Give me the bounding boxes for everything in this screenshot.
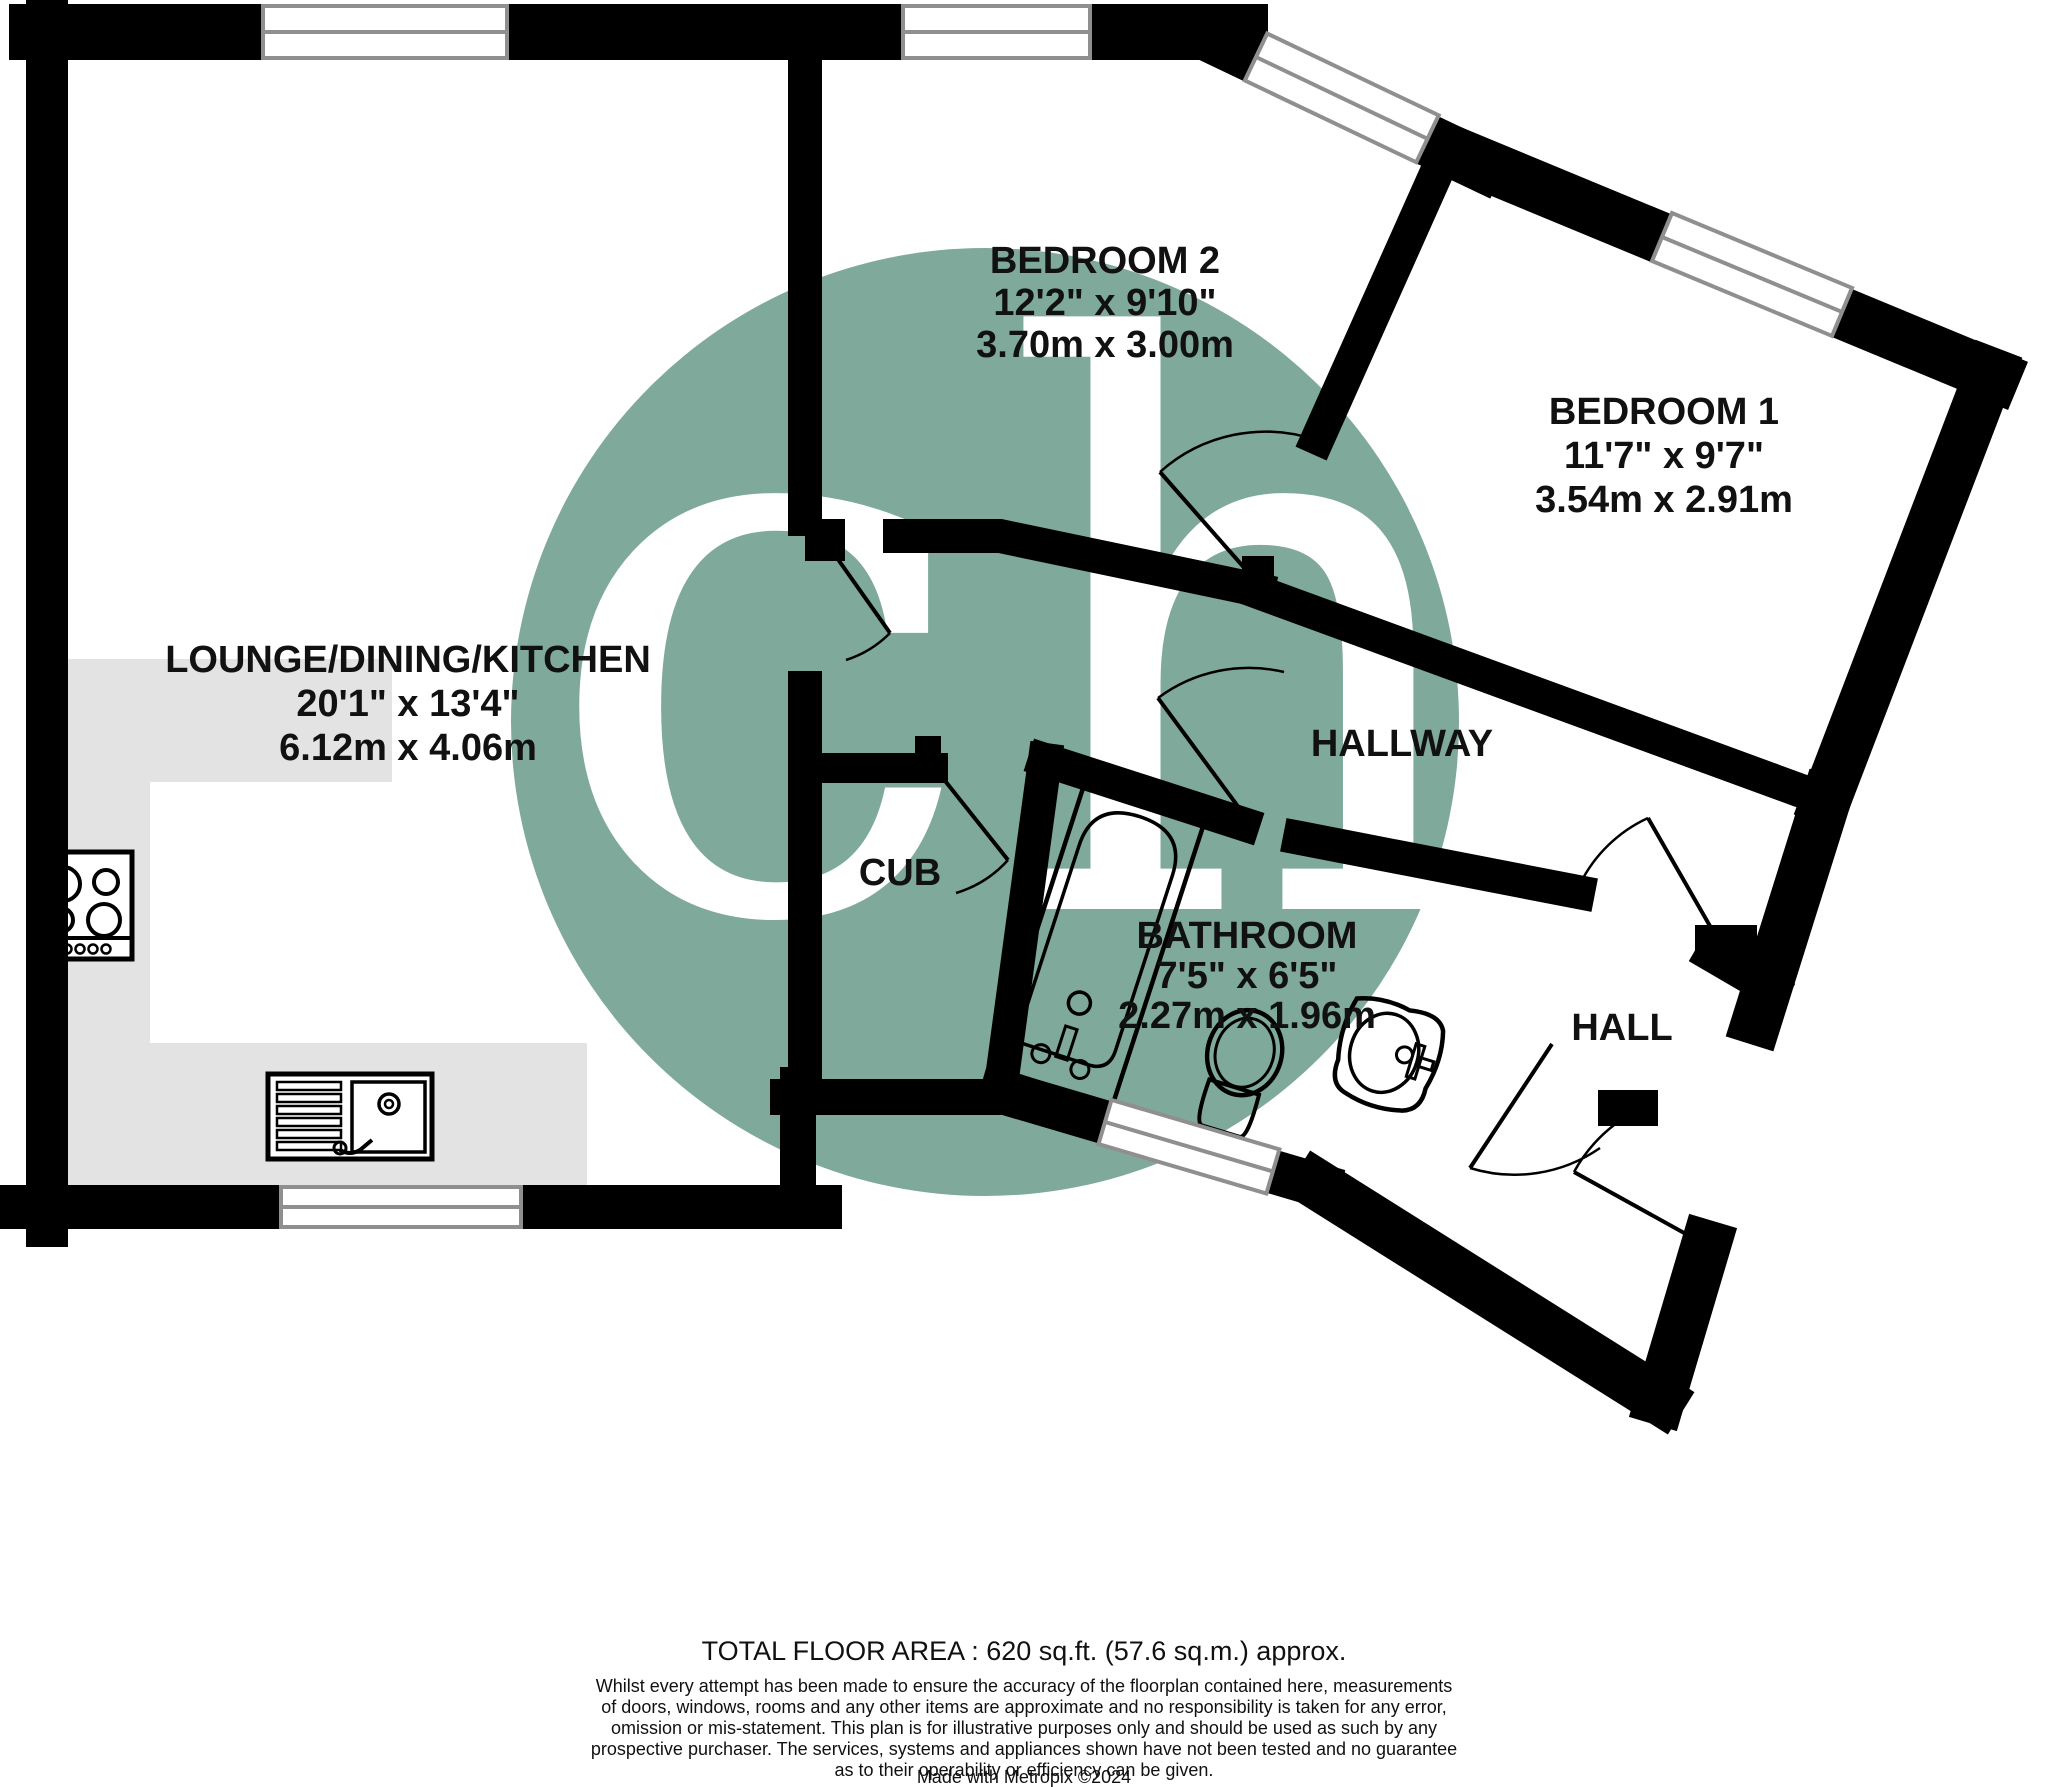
disclaimer-line-2: of doors, windows, rooms and any other i… [601, 1697, 1446, 1717]
floorplan-drawing: ch [0, 0, 2048, 1787]
disclaimer-line-3: omission or mis-statement. This plan is … [611, 1718, 1437, 1738]
jamb-entrance [1598, 1090, 1658, 1126]
window-top-1 [263, 6, 507, 58]
label-cub: CUB [859, 852, 941, 894]
disclaimer-line-4: prospective purchaser. The services, sys… [591, 1739, 1457, 1759]
bedroom2-dims-metric: 3.70m x 3.00m [976, 324, 1234, 366]
lounge-dims-metric: 6.12m x 4.06m [279, 727, 537, 769]
jamb-hall [1695, 925, 1757, 961]
window-bottom [281, 1187, 521, 1227]
label-bedroom1: BEDROOM 1 11'7" x 9'7" 3.54m x 2.91m [1535, 391, 1793, 521]
lounge-name: LOUNGE/DINING/KITCHEN [165, 639, 651, 681]
metropix-credit: Made with Metropix ©2024 [917, 1767, 1131, 1787]
kitchen-sink-icon [268, 1074, 432, 1159]
bedroom1-name: BEDROOM 1 [1549, 391, 1779, 433]
bathroom-dims-imperial: 7'5" x 6'5" [1157, 955, 1338, 997]
bathroom-dims-metric: 2.27m x 1.96m [1118, 995, 1376, 1037]
bedroom2-name: BEDROOM 2 [990, 240, 1220, 282]
total-floor-area: TOTAL FLOOR AREA : 620 sq.ft. (57.6 sq.m… [702, 1636, 1347, 1666]
label-hall: HALL [1571, 1007, 1672, 1049]
jamb-bed2 [805, 519, 845, 561]
disclaimer-line-1: Whilst every attempt has been made to en… [596, 1676, 1452, 1696]
bedroom1-dims-imperial: 11'7" x 9'7" [1564, 435, 1764, 477]
label-bathroom: BATHROOM 7'5" x 6'5" 2.27m x 1.96m [1118, 915, 1376, 1037]
label-bedroom2: BEDROOM 2 12'2" x 9'10" 3.70m x 3.00m [976, 240, 1234, 366]
jamb-cub [915, 736, 941, 772]
bedroom1-dims-metric: 3.54m x 2.91m [1535, 479, 1793, 521]
floorplan-page: ch [0, 0, 2048, 1787]
window-top-2 [903, 6, 1090, 58]
label-hallway: HALLWAY [1311, 723, 1493, 765]
jamb-bed1 [1242, 556, 1274, 596]
lounge-dims-imperial: 20'1" x 13'4" [296, 683, 519, 725]
bedroom2-dims-imperial: 12'2" x 9'10" [993, 282, 1216, 324]
bathroom-name: BATHROOM [1137, 915, 1358, 957]
